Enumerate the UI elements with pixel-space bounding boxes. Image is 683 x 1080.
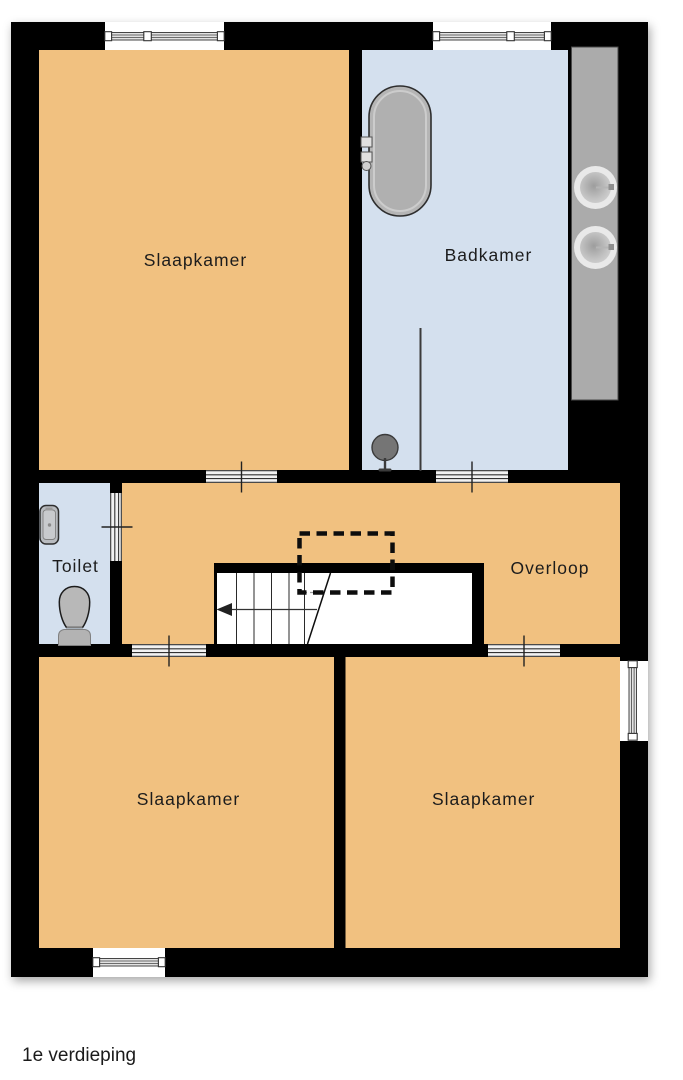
svg-text:Slaapkamer: Slaapkamer [144,250,247,270]
svg-text:Badkamer: Badkamer [445,245,533,265]
svg-text:Overloop: Overloop [510,558,589,578]
svg-text:1e verdieping: 1e verdieping [22,1045,136,1066]
svg-text:Slaapkamer: Slaapkamer [432,789,535,809]
svg-text:Slaapkamer: Slaapkamer [137,789,240,809]
svg-text:Toilet: Toilet [52,556,99,576]
